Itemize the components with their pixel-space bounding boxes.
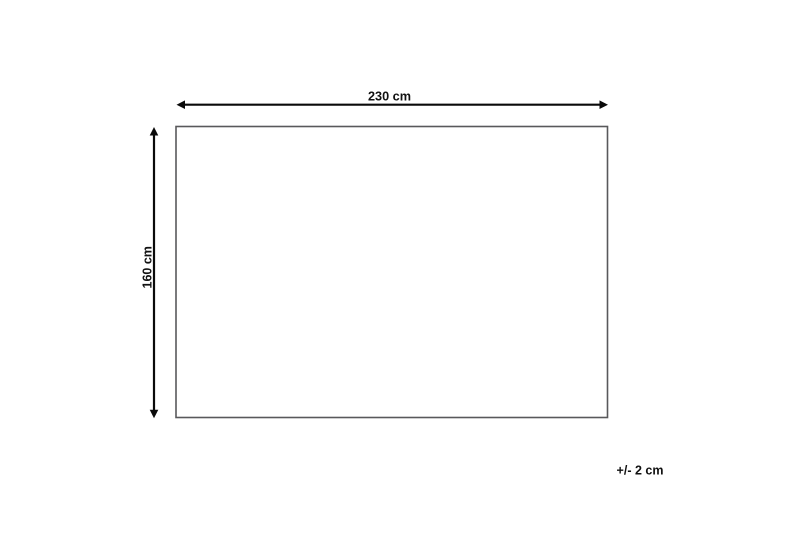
svg-text:230 cm: 230 cm bbox=[368, 89, 411, 103]
svg-text:160 cm: 160 cm bbox=[141, 246, 155, 288]
svg-text:+/- 2 cm: +/- 2 cm bbox=[617, 463, 664, 477]
